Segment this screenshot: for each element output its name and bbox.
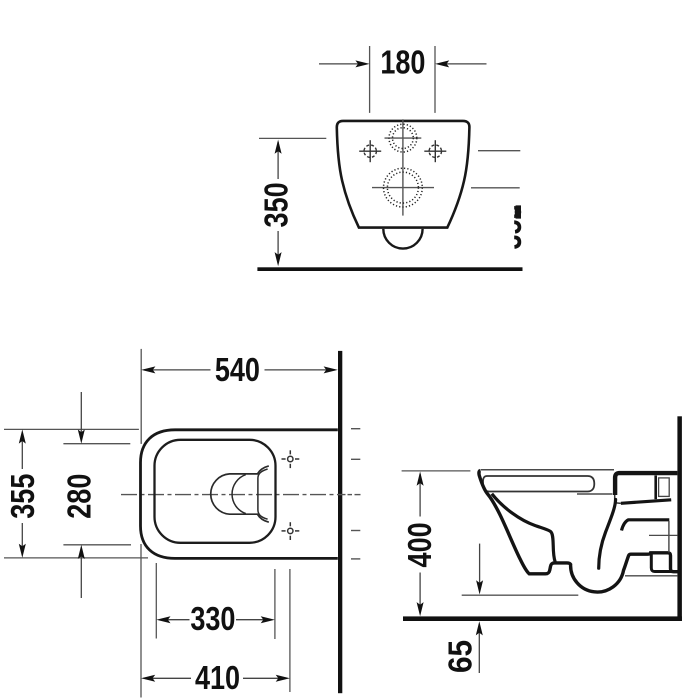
svg-text:540: 540 — [215, 353, 260, 389]
svg-text:355: 355 — [5, 474, 41, 519]
svg-text:330: 330 — [190, 601, 235, 637]
svg-text:350: 350 — [259, 182, 295, 227]
svg-text:410: 410 — [195, 661, 240, 697]
svg-text:65: 65 — [442, 640, 479, 673]
svg-text:280: 280 — [62, 474, 98, 519]
svg-text:180: 180 — [380, 45, 425, 81]
svg-text:400: 400 — [403, 522, 439, 567]
